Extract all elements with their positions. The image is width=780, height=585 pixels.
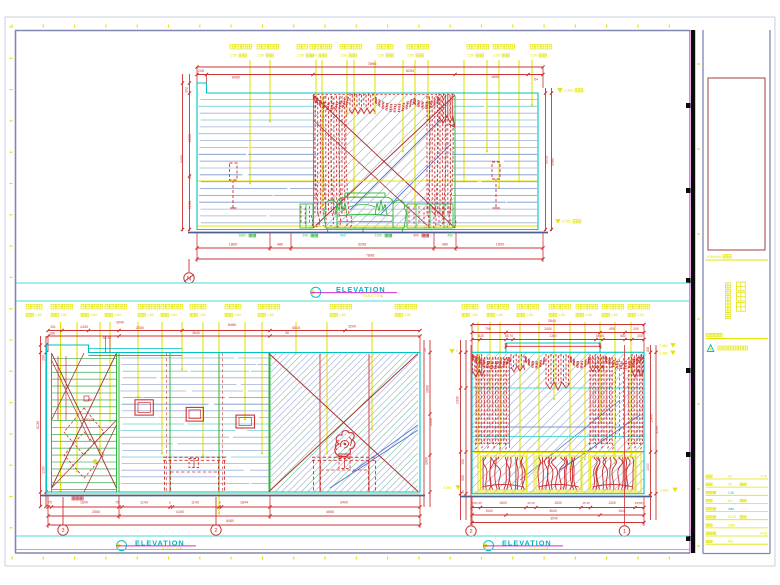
- svg-text:0.050: 0.050: [562, 220, 571, 224]
- svg-text:1:50: 1:50: [728, 491, 734, 495]
- svg-text:206: 206: [198, 69, 204, 73]
- svg-text:200: 200: [646, 347, 650, 353]
- svg-text:4650: 4650: [326, 510, 334, 514]
- svg-text:1:50: 1:50: [234, 313, 241, 317]
- svg-text:4160: 4160: [176, 510, 184, 514]
- svg-text:85 70: 85 70: [505, 334, 513, 338]
- svg-text:1:50: 1:50: [114, 313, 121, 317]
- svg-text:1:50: 1:50: [297, 54, 304, 58]
- svg-text:2.380: 2.380: [659, 352, 668, 356]
- svg-text:1:50: 1:50: [496, 313, 503, 317]
- svg-text:85: 85: [188, 175, 192, 179]
- svg-text:5015: 5015: [292, 326, 300, 330]
- svg-text:850: 850: [461, 475, 465, 481]
- svg-text:1:50: 1:50: [170, 313, 177, 317]
- svg-text:1:50: 1:50: [377, 54, 384, 58]
- svg-text:2400: 2400: [650, 414, 654, 422]
- svg-text:1: 1: [623, 529, 626, 535]
- svg-text:1:50: 1:50: [230, 54, 237, 58]
- svg-text:1540: 1540: [485, 509, 493, 513]
- svg-text:1600: 1600: [499, 501, 507, 505]
- svg-text:1000: 1000: [425, 457, 429, 465]
- svg-text:1:50: 1:50: [530, 54, 537, 58]
- svg-text:75: 75: [48, 501, 52, 505]
- svg-text:45 45: 45 45: [582, 501, 590, 505]
- svg-text:1:50: 1:50: [637, 313, 644, 317]
- svg-text:1.050(A): 1.050(A): [81, 418, 94, 422]
- svg-text:2640: 2640: [548, 319, 556, 323]
- svg-text:600: 600: [340, 234, 346, 238]
- svg-text:8480: 8480: [226, 519, 234, 523]
- svg-text:45(65): 45(65): [635, 501, 644, 505]
- svg-text:1:50: 1:50: [147, 313, 154, 317]
- svg-text:1100: 1100: [188, 201, 192, 209]
- svg-text:1:50: 1:50: [199, 313, 206, 317]
- svg-text:60: 60: [88, 398, 92, 402]
- svg-text:1:50: 1:50: [257, 54, 264, 58]
- svg-text:2: 2: [469, 529, 472, 535]
- svg-text:1890: 1890: [491, 75, 499, 79]
- svg-text:2560: 2560: [92, 510, 100, 514]
- svg-text:101: 101: [50, 325, 56, 329]
- svg-text:98: 98: [285, 331, 289, 335]
- svg-text:1:50: 1:50: [339, 313, 346, 317]
- svg-text:8450: 8450: [232, 76, 240, 80]
- svg-text:SCALE 1:50: SCALE 1:50: [363, 294, 381, 298]
- svg-text:790: 790: [485, 327, 491, 331]
- svg-text:75: 75: [115, 501, 119, 505]
- svg-text:7896: 7896: [368, 61, 378, 66]
- svg-text:No.: No.: [728, 499, 733, 503]
- svg-text:900: 900: [413, 234, 419, 238]
- svg-text:05: 05: [728, 483, 732, 487]
- svg-text:3130: 3130: [36, 421, 40, 429]
- svg-text:480: 480: [277, 243, 283, 247]
- svg-text:1600: 1600: [80, 501, 88, 505]
- svg-text:1844: 1844: [240, 501, 248, 505]
- svg-text:1:50: 1:50: [35, 313, 42, 317]
- svg-text:188: 188: [49, 332, 55, 336]
- svg-text:625: 625: [478, 334, 484, 338]
- svg-text:2100: 2100: [374, 234, 381, 238]
- svg-text:65 85: 65 85: [596, 334, 604, 338]
- svg-text:05-26: 05-26: [728, 515, 736, 519]
- svg-text:490: 490: [609, 327, 615, 331]
- svg-text:8480: 8480: [228, 323, 236, 327]
- svg-text:240: 240: [302, 234, 308, 238]
- svg-text:3190: 3190: [655, 426, 659, 434]
- svg-text:3353: 3353: [545, 156, 549, 164]
- svg-text:3200: 3200: [348, 325, 356, 329]
- svg-text:A3: A3: [728, 475, 732, 479]
- svg-text:1:50: 1:50: [471, 313, 478, 317]
- svg-text:1:50: 1:50: [526, 313, 533, 317]
- svg-text:data: data: [728, 507, 734, 511]
- svg-text:200: 200: [42, 355, 46, 361]
- svg-text:1860: 1860: [229, 243, 237, 247]
- svg-text:1:50: 1:50: [404, 313, 411, 317]
- svg-text:2500: 2500: [429, 418, 433, 426]
- svg-text:1:50: 1:50: [611, 313, 618, 317]
- svg-text:1530: 1530: [554, 501, 562, 505]
- svg-text:580: 580: [620, 334, 626, 338]
- svg-text:1:50: 1:50: [90, 313, 97, 317]
- svg-text:1:50: 1:50: [493, 54, 500, 58]
- svg-text:0.050: 0.050: [443, 486, 452, 490]
- svg-text:3640: 3640: [192, 331, 200, 335]
- svg-text:50: 50: [423, 348, 427, 352]
- svg-text:190: 190: [461, 459, 465, 465]
- svg-text:3386: 3386: [551, 158, 555, 166]
- svg-text:1600: 1600: [496, 243, 504, 247]
- svg-text:1:50: 1:50: [60, 313, 67, 317]
- svg-text:5: 5: [456, 349, 458, 353]
- svg-text:3540: 3540: [550, 517, 558, 521]
- svg-text:KAWAH: KAWAH: [707, 254, 721, 259]
- svg-text:1060: 1060: [426, 385, 430, 393]
- svg-text:200: 200: [633, 327, 639, 331]
- svg-text:2.380: 2.380: [564, 89, 573, 93]
- svg-text:1050: 1050: [42, 466, 46, 474]
- svg-text:2-05: 2-05: [761, 475, 768, 479]
- svg-text:54: 54: [534, 78, 538, 82]
- svg-text:1300: 1300: [549, 334, 556, 338]
- svg-text:3040: 3040: [116, 321, 124, 325]
- svg-text:3400: 3400: [180, 155, 184, 163]
- svg-text:0.050: 0.050: [660, 489, 669, 493]
- svg-text:2005: 2005: [728, 523, 735, 527]
- svg-text:1300: 1300: [608, 501, 616, 505]
- svg-text:202: 202: [185, 87, 189, 93]
- svg-text:1143: 1143: [140, 501, 148, 505]
- svg-text:200: 200: [637, 334, 643, 338]
- svg-text:6254: 6254: [406, 69, 414, 73]
- svg-text:2000: 2000: [136, 326, 144, 330]
- svg-text:1:50: 1:50: [407, 54, 414, 58]
- svg-text:2200: 2200: [188, 134, 192, 142]
- svg-text:3296: 3296: [358, 243, 366, 247]
- svg-text:1143: 1143: [191, 501, 199, 505]
- svg-text:7896: 7896: [366, 254, 374, 258]
- svg-text:2.480: 2.480: [659, 344, 668, 348]
- svg-text:Rev: Rev: [728, 540, 734, 544]
- svg-text:1:50: 1:50: [585, 313, 592, 317]
- svg-text:3: 3: [61, 528, 64, 534]
- svg-text:3640: 3640: [549, 509, 557, 513]
- svg-text:2400: 2400: [544, 327, 552, 331]
- svg-text:1:50: 1:50: [310, 54, 317, 58]
- svg-text:1890: 1890: [238, 234, 245, 238]
- svg-text:1:50: 1:50: [558, 313, 565, 317]
- svg-text:2: 2: [214, 528, 217, 534]
- svg-text:1000: 1000: [646, 463, 650, 471]
- svg-text:1: 1: [381, 294, 383, 298]
- svg-text:1:50: 1:50: [267, 313, 274, 317]
- svg-text:45 45: 45 45: [527, 501, 535, 505]
- svg-text:(65) 45: (65) 45: [472, 501, 482, 505]
- svg-text:45: 45: [461, 490, 465, 494]
- svg-text:1:50: 1:50: [340, 54, 347, 58]
- svg-text:450: 450: [447, 234, 453, 238]
- svg-text:1:50: 1:50: [467, 54, 474, 58]
- svg-text:2330: 2330: [456, 396, 460, 404]
- svg-text:1430: 1430: [80, 325, 88, 329]
- svg-text:480: 480: [442, 243, 448, 247]
- svg-text:3400: 3400: [340, 501, 348, 505]
- svg-text:A-05: A-05: [760, 532, 767, 536]
